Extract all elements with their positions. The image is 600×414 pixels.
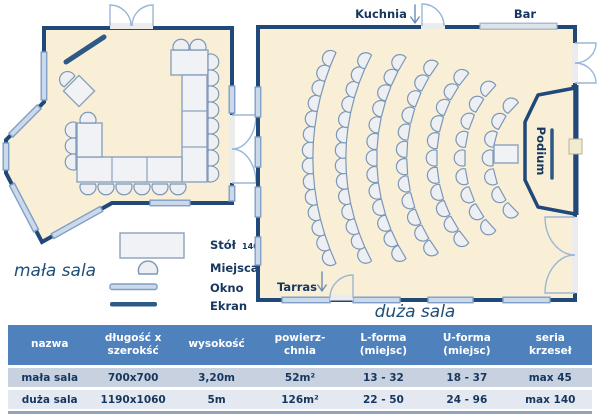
legend-seat-swatch bbox=[138, 261, 157, 274]
door-opening bbox=[330, 295, 353, 301]
window-icon bbox=[255, 87, 261, 117]
chair-icon bbox=[65, 154, 76, 170]
double-door-icon bbox=[575, 43, 596, 63]
double-door-icon bbox=[232, 115, 256, 149]
chair-icon bbox=[80, 184, 96, 195]
floor-plan: mała sala Stół 140x100 Miejsca Okno Ekra… bbox=[0, 0, 600, 325]
legend-table-label: Stół bbox=[210, 238, 237, 252]
door-icon bbox=[422, 4, 444, 26]
large-room-label: duża sala bbox=[375, 302, 456, 322]
specs-table: nazwa długość x szerokść wysokość powier… bbox=[8, 325, 592, 414]
col-header-powierzchnia: powierz- chnia bbox=[258, 325, 341, 365]
chair-icon bbox=[366, 150, 377, 166]
chair-icon bbox=[208, 118, 219, 134]
chair-icon bbox=[138, 261, 157, 274]
podium bbox=[525, 88, 575, 214]
cell: 18 - 37 bbox=[425, 368, 508, 387]
window-icon bbox=[503, 297, 550, 303]
window-icon bbox=[3, 143, 9, 170]
chair-icon bbox=[208, 150, 219, 166]
col-header-l-forma: L-forma (miejsc) bbox=[342, 325, 425, 365]
col-header-nazwa: nazwa bbox=[8, 325, 91, 365]
chair-icon bbox=[208, 102, 219, 118]
chair-icon bbox=[170, 184, 186, 195]
cell: max 45 bbox=[509, 368, 592, 387]
legend-window-label: Okno bbox=[210, 281, 244, 295]
chair-icon bbox=[152, 184, 168, 195]
col-header-dlugosc: długość x szerokść bbox=[91, 325, 174, 365]
double-door-icon bbox=[232, 149, 256, 183]
legend-screen-swatch bbox=[110, 302, 157, 307]
large-room: Podium Kuchnia Bar Tarras duża sala bbox=[255, 4, 596, 322]
chair-icon bbox=[65, 138, 76, 154]
chair-icon bbox=[208, 70, 219, 86]
legend-screen-label: Ekran bbox=[210, 299, 247, 313]
tarras-label: Tarras bbox=[277, 280, 317, 294]
cell: 52m² bbox=[258, 368, 341, 387]
cell: duża sala bbox=[8, 390, 91, 409]
chair-icon bbox=[80, 112, 96, 123]
chair-icon bbox=[134, 184, 150, 195]
door-opening bbox=[421, 23, 445, 29]
cell: 13 - 32 bbox=[342, 368, 425, 387]
window-icon bbox=[255, 187, 261, 217]
cell: max 140 bbox=[509, 390, 592, 409]
cell: 24 - 96 bbox=[425, 390, 508, 409]
chair-icon bbox=[208, 166, 219, 182]
small-room-label: mała sala bbox=[14, 261, 96, 281]
table bbox=[182, 75, 207, 182]
window-icon bbox=[229, 86, 235, 113]
cell: 5m bbox=[175, 390, 258, 409]
table bbox=[171, 50, 208, 75]
table bbox=[77, 123, 102, 157]
double-door-icon bbox=[132, 5, 153, 26]
bar-counter bbox=[480, 23, 557, 29]
table-row: mała sala 700x700 3,20m 52m² 13 - 32 18 … bbox=[8, 368, 592, 387]
chair-icon bbox=[208, 54, 219, 70]
wall-notch bbox=[569, 139, 582, 154]
kuchnia-label: Kuchnia bbox=[355, 7, 407, 21]
floor-plan-page: mała sala Stół 140x100 Miejsca Okno Ekra… bbox=[0, 0, 600, 414]
window-icon bbox=[150, 200, 190, 206]
chair-icon bbox=[65, 122, 76, 138]
legend-seats-label: Miejsca bbox=[210, 261, 259, 275]
double-door-icon bbox=[110, 5, 131, 26]
cell: mała sala bbox=[8, 368, 91, 387]
cell: 700x700 bbox=[91, 368, 174, 387]
window-icon bbox=[255, 137, 261, 167]
window-icon bbox=[229, 186, 235, 201]
legend-table-swatch bbox=[120, 233, 184, 258]
col-header-u-forma: U-forma (miejsc) bbox=[425, 325, 508, 365]
chair-icon bbox=[454, 150, 465, 166]
speaker-side-table bbox=[494, 145, 518, 163]
double-door-icon bbox=[575, 63, 596, 83]
table bbox=[77, 157, 182, 182]
chair-icon bbox=[208, 86, 219, 102]
cell: 1190x1060 bbox=[91, 390, 174, 409]
chair-icon bbox=[482, 150, 493, 166]
cell: 3,20m bbox=[175, 368, 258, 387]
chair-icon bbox=[190, 39, 206, 50]
cell: 126m² bbox=[258, 390, 341, 409]
cell: 22 - 50 bbox=[342, 390, 425, 409]
window-icon bbox=[282, 297, 330, 303]
specs-table-header-row: nazwa długość x szerokść wysokość powier… bbox=[8, 325, 592, 365]
window-icon bbox=[41, 52, 47, 100]
col-header-seria: seria krzeseł bbox=[509, 325, 592, 365]
legend-window-swatch bbox=[110, 284, 157, 290]
bar-label: Bar bbox=[514, 7, 537, 21]
down-arrow-icon bbox=[411, 5, 419, 23]
chair-icon bbox=[426, 150, 437, 166]
window-icon bbox=[255, 237, 261, 265]
table-row: duża sala 1190x1060 5m 126m² 22 - 50 24 … bbox=[8, 390, 592, 409]
col-header-wysokosc: wysokość bbox=[175, 325, 258, 365]
chair-icon bbox=[98, 184, 114, 195]
chair-icon bbox=[173, 39, 189, 50]
chair-icon bbox=[208, 134, 219, 150]
podium-label: Podium bbox=[534, 127, 548, 176]
chair-icon bbox=[116, 184, 132, 195]
